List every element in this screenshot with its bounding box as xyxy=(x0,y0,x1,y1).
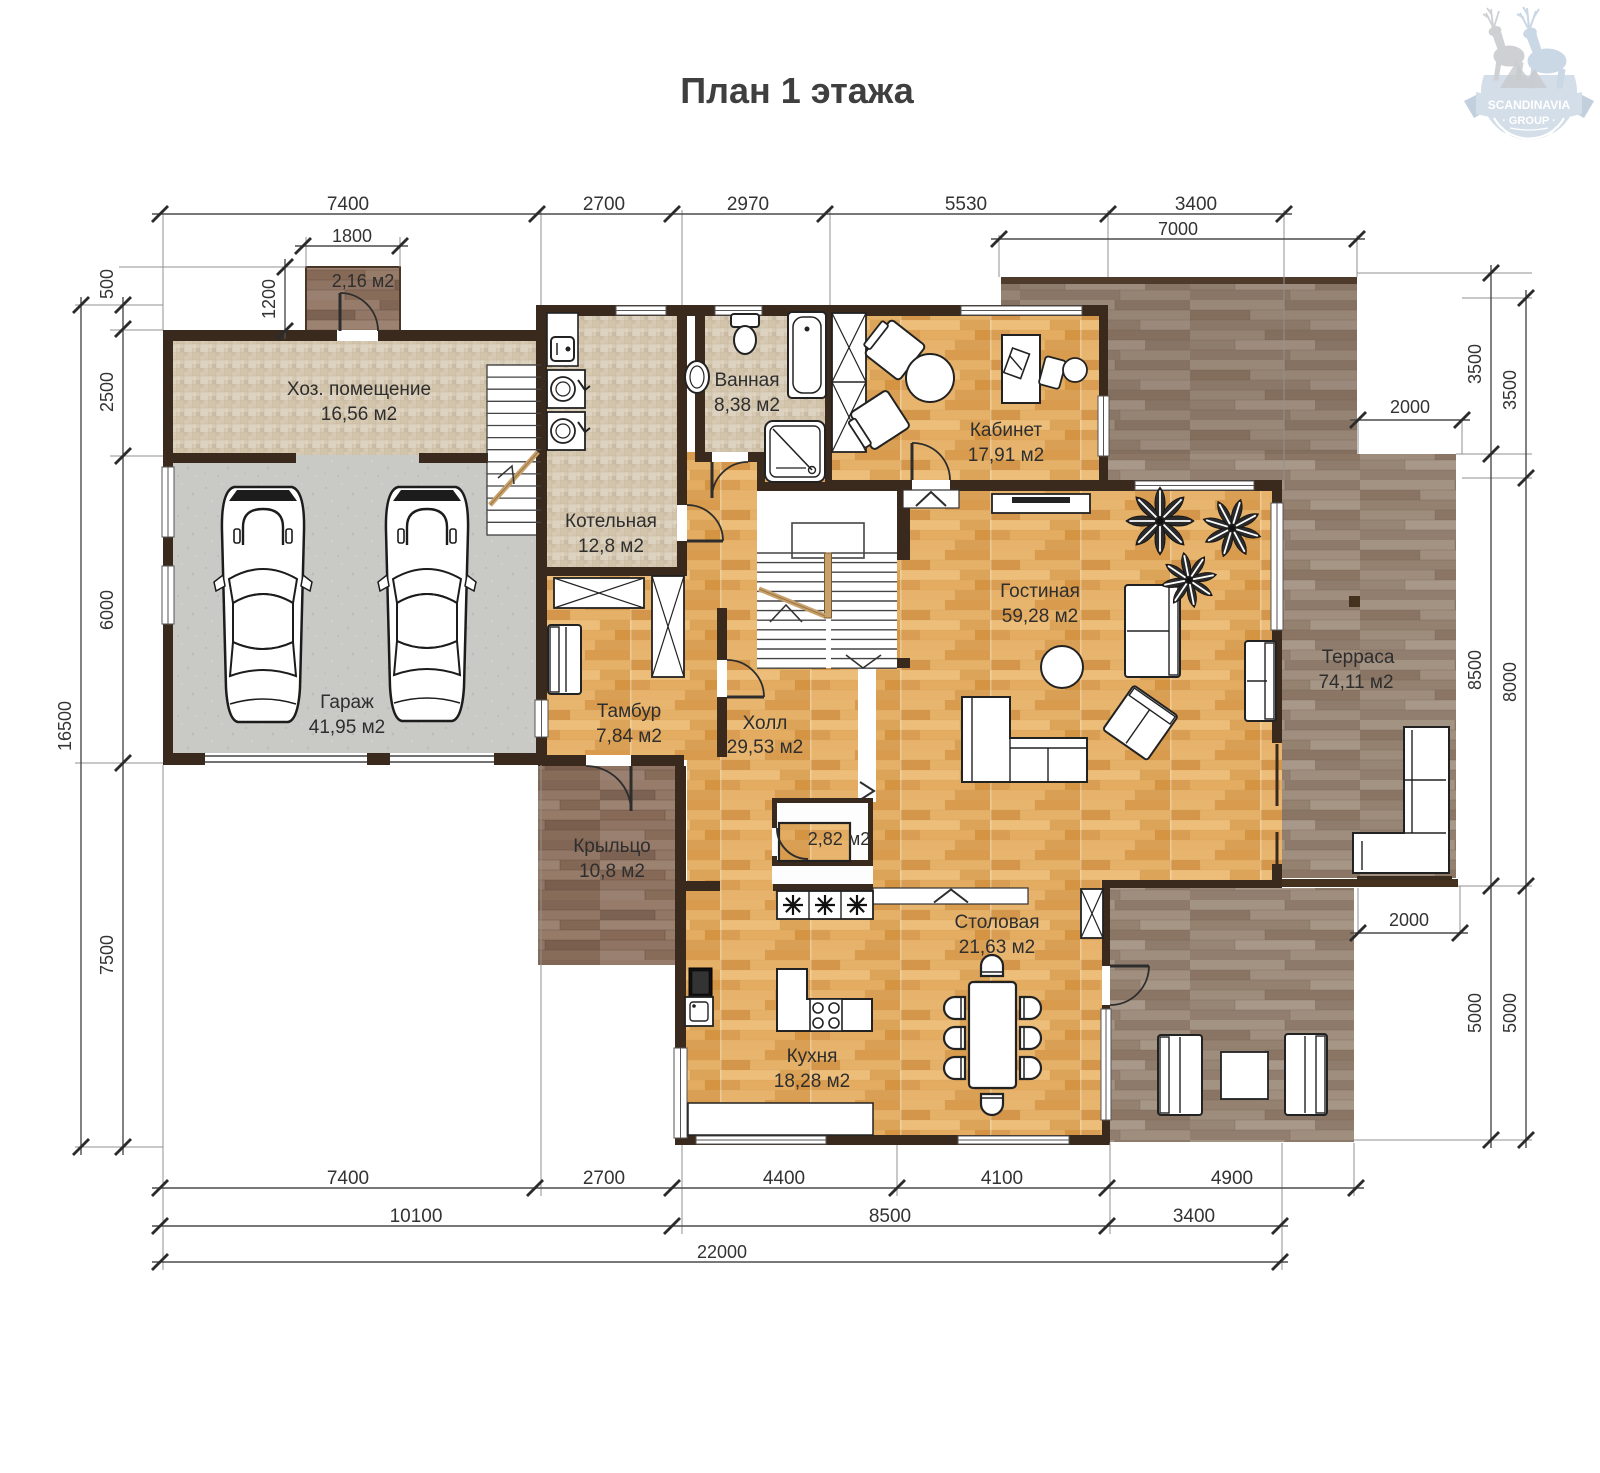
svg-text:Кабинет: Кабинет xyxy=(970,420,1043,441)
svg-text:Крыльцо: Крыльцо xyxy=(573,836,651,857)
svg-text:2970: 2970 xyxy=(727,194,769,215)
svg-text:Гостиная: Гостиная xyxy=(1000,581,1080,602)
svg-text:74,11 м2: 74,11 м2 xyxy=(1318,672,1393,693)
svg-text:2700: 2700 xyxy=(583,194,625,215)
svg-text:· GROUP ·: · GROUP · xyxy=(1502,115,1556,127)
svg-text:Холл: Холл xyxy=(743,713,788,734)
svg-text:10100: 10100 xyxy=(390,1206,443,1227)
svg-text:1800: 1800 xyxy=(332,226,372,246)
svg-text:41,95 м2: 41,95 м2 xyxy=(309,717,385,738)
svg-text:4100: 4100 xyxy=(981,1168,1023,1189)
svg-text:Хоз. помещение: Хоз. помещение xyxy=(287,379,431,400)
svg-text:16,56 м2: 16,56 м2 xyxy=(321,404,397,425)
svg-text:Терраса: Терраса xyxy=(1322,647,1395,668)
svg-text:2500: 2500 xyxy=(97,372,117,412)
svg-text:12,8 м2: 12,8 м2 xyxy=(578,536,644,557)
svg-text:7000: 7000 xyxy=(1158,219,1198,239)
svg-text:18,28 м2: 18,28 м2 xyxy=(774,1071,850,1092)
svg-text:3500: 3500 xyxy=(1500,370,1520,410)
svg-text:8000: 8000 xyxy=(1500,662,1520,702)
svg-text:7,84 м2: 7,84 м2 xyxy=(596,726,662,747)
svg-text:22000: 22000 xyxy=(697,1242,747,1262)
svg-text:4400: 4400 xyxy=(763,1168,805,1189)
svg-text:21,63 м2: 21,63 м2 xyxy=(959,937,1035,958)
svg-text:4900: 4900 xyxy=(1211,1168,1253,1189)
svg-text:17,91 м2: 17,91 м2 xyxy=(968,445,1044,466)
svg-text:5000: 5000 xyxy=(1500,993,1520,1033)
svg-text:29,53 м2: 29,53 м2 xyxy=(727,737,803,758)
svg-text:3500: 3500 xyxy=(1465,344,1485,384)
svg-text:5530: 5530 xyxy=(945,194,987,215)
svg-text:7400: 7400 xyxy=(327,194,369,215)
svg-text:2,82 м2: 2,82 м2 xyxy=(808,829,870,849)
svg-text:16500: 16500 xyxy=(55,701,75,751)
svg-text:Столовая: Столовая xyxy=(955,912,1040,933)
svg-text:SCANDINAVIA: SCANDINAVIA xyxy=(1488,98,1571,112)
svg-text:Ванная: Ванная xyxy=(714,370,779,391)
svg-text:500: 500 xyxy=(97,269,117,299)
svg-text:Гараж: Гараж xyxy=(320,692,374,713)
svg-text:3400: 3400 xyxy=(1173,1206,1215,1227)
svg-text:8500: 8500 xyxy=(869,1206,911,1227)
svg-text:7400: 7400 xyxy=(327,1168,369,1189)
svg-text:2,16 м2: 2,16 м2 xyxy=(332,271,394,291)
svg-text:2700: 2700 xyxy=(583,1168,625,1189)
svg-text:7500: 7500 xyxy=(97,935,117,975)
svg-text:8500: 8500 xyxy=(1465,650,1485,690)
svg-text:59,28 м2: 59,28 м2 xyxy=(1002,606,1078,627)
svg-text:Тамбур: Тамбур xyxy=(597,701,662,722)
svg-text:План 1 этажа: План 1 этажа xyxy=(680,70,915,111)
svg-text:8,38 м2: 8,38 м2 xyxy=(714,395,780,416)
svg-text:3400: 3400 xyxy=(1175,194,1217,215)
svg-text:2000: 2000 xyxy=(1390,397,1430,417)
svg-text:Котельная: Котельная xyxy=(565,511,657,532)
svg-text:1200: 1200 xyxy=(259,279,279,319)
svg-text:Кухня: Кухня xyxy=(787,1046,838,1067)
svg-text:5000: 5000 xyxy=(1465,993,1485,1033)
svg-text:2000: 2000 xyxy=(1389,910,1429,930)
svg-text:10,8 м2: 10,8 м2 xyxy=(579,861,645,882)
svg-text:6000: 6000 xyxy=(97,590,117,630)
